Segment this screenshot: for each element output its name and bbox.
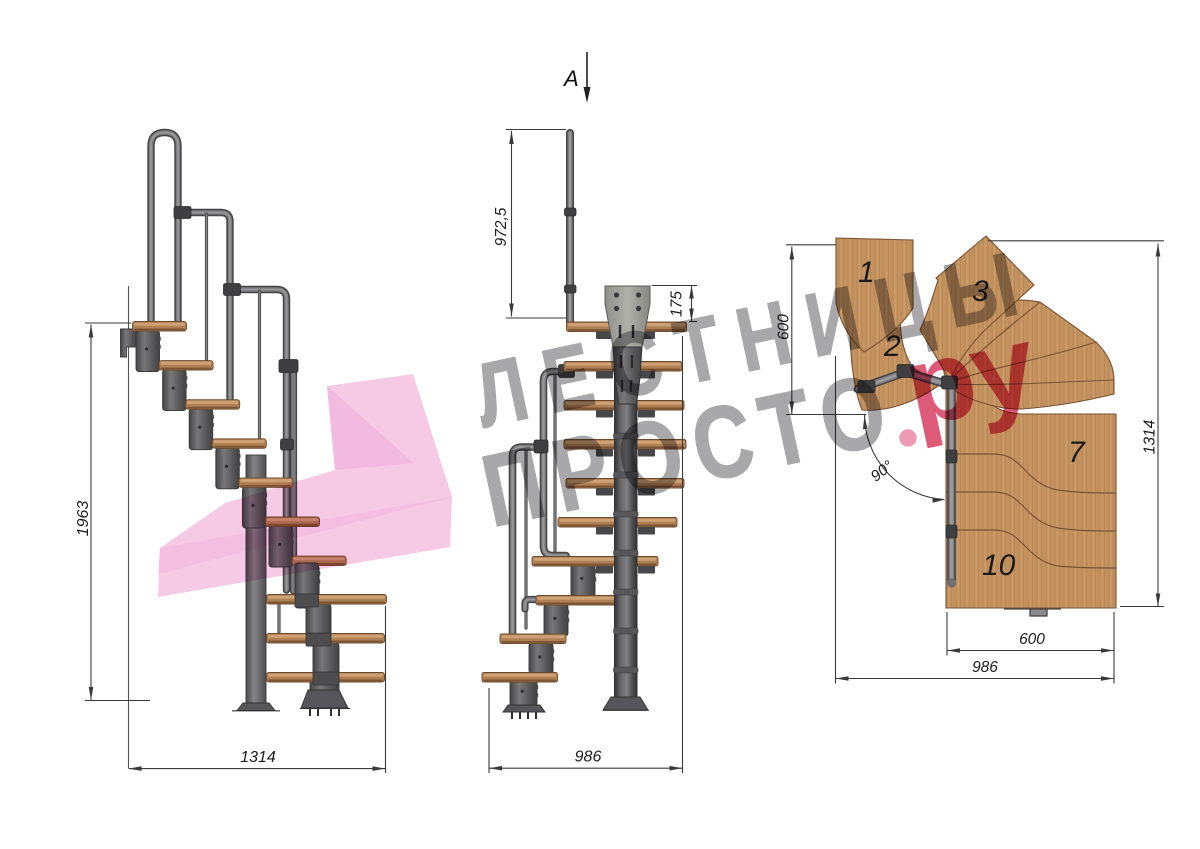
svg-text:1314: 1314 (240, 749, 276, 766)
svg-text:A: A (562, 66, 579, 91)
svg-text:10: 10 (982, 549, 1016, 582)
svg-text:ру: ру (894, 300, 1047, 450)
svg-text:972,5: 972,5 (493, 207, 510, 246)
svg-text:986: 986 (575, 749, 602, 766)
svg-text:986: 986 (972, 659, 998, 676)
svg-text:600: 600 (1019, 631, 1045, 648)
svg-text:1314: 1314 (1142, 419, 1159, 454)
svg-text:7: 7 (1068, 436, 1086, 469)
svg-text:1963: 1963 (75, 501, 92, 537)
